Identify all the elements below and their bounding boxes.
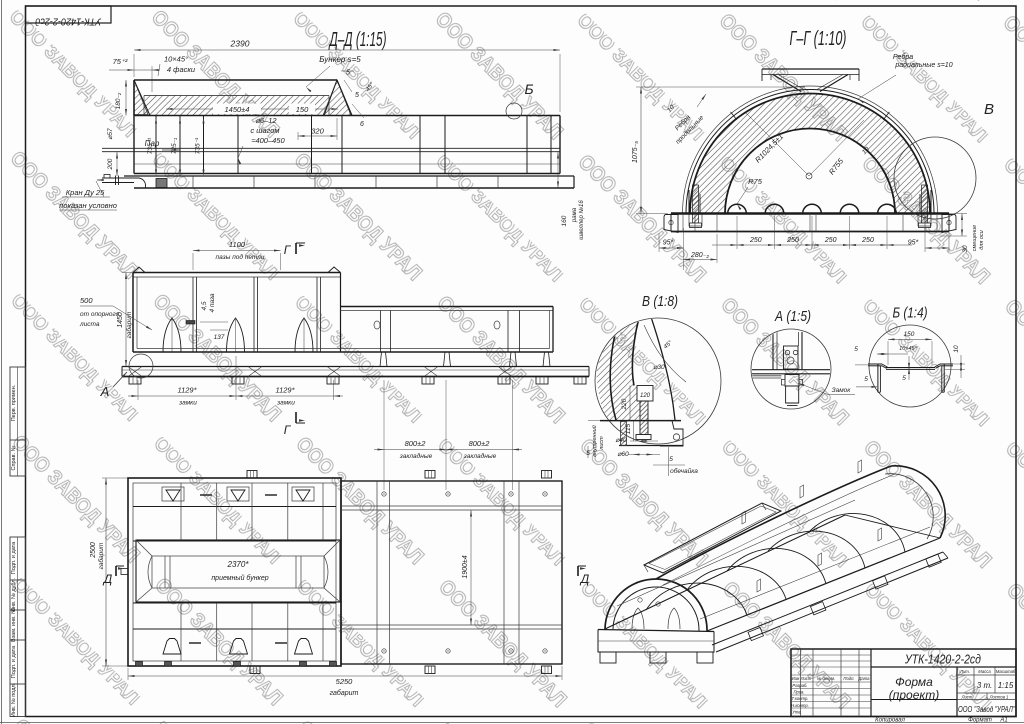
svg-text:R75: R75 (748, 177, 763, 186)
svg-text:приемный бункер: приемный бункер (211, 574, 268, 582)
svg-text:Лист: Лист (961, 695, 973, 700)
svg-text:1075₋₅: 1075₋₅ (632, 141, 639, 163)
svg-text:⌀40: ⌀40 (615, 437, 627, 444)
svg-text:Разраб.: Разраб. (792, 683, 807, 688)
svg-text:Замок: Замок (832, 387, 852, 394)
svg-text:5: 5 (854, 346, 858, 353)
svg-text:Пров.: Пров. (793, 690, 804, 695)
svg-text:200: 200 (107, 158, 114, 170)
svg-text:Подп. и дата: Подп. и дата (11, 645, 17, 678)
svg-text:швеллер №16: швеллер №16 (578, 200, 585, 240)
svg-text:10×45°: 10×45° (899, 346, 917, 352)
svg-text:95*: 95* (908, 240, 919, 247)
svg-text:150: 150 (296, 105, 309, 114)
svg-text:Копировал: Копировал (875, 718, 905, 724)
svg-text:лист: лист (599, 436, 605, 451)
svg-text:4 паза: 4 паза (209, 293, 216, 312)
svg-text:Формат: Формат (968, 718, 992, 724)
svg-text:280₋₂: 280₋₂ (690, 252, 709, 259)
svg-text:Б: Б (524, 81, 533, 97)
svg-text:220: 220 (621, 398, 628, 410)
svg-text:Д–Д (1:15): Д–Д (1:15) (328, 29, 386, 51)
svg-text:5: 5 (346, 70, 350, 77)
svg-text:А: А (100, 384, 110, 399)
svg-text:250: 250 (786, 237, 799, 244)
svg-text:⌀60: ⌀60 (617, 451, 629, 458)
svg-text:800±2: 800±2 (405, 439, 427, 448)
svg-text:от опорного: от опорного (80, 311, 120, 318)
svg-text:Д: Д (579, 572, 590, 586)
svg-text:250: 250 (749, 237, 762, 244)
svg-text:Г–Г (1:10): Г–Г (1:10) (790, 28, 847, 50)
svg-text:Д: Д (102, 572, 113, 586)
svg-text:Лист: Лист (800, 676, 812, 681)
svg-text:1100: 1100 (229, 240, 246, 249)
svg-text:5: 5 (355, 92, 359, 99)
svg-text:Ребра: Ребра (893, 53, 913, 61)
svg-text:180₋₂: 180₋₂ (115, 92, 122, 109)
svg-text:1129*: 1129* (177, 386, 197, 395)
svg-text:6: 6 (360, 121, 364, 128)
svg-text:3 т.: 3 т. (977, 681, 992, 690)
svg-text:1129*: 1129* (275, 386, 295, 395)
svg-text:рама: рама (572, 207, 578, 223)
svg-text:А (1:5): А (1:5) (774, 308, 811, 325)
svg-text:Инв. № подл.: Инв. № подл. (11, 682, 17, 717)
svg-text:4,5: 4,5 (201, 301, 208, 310)
svg-text:725₋₁: 725₋₁ (171, 138, 178, 154)
svg-text:габарит: габарит (97, 542, 105, 569)
svg-text:500: 500 (80, 296, 93, 305)
svg-text:А1: А1 (999, 718, 1007, 724)
svg-text:габарит: габарит (330, 689, 359, 697)
svg-text:Справ. №: Справ. № (11, 445, 17, 470)
svg-text:с шагом: с шагом (250, 126, 279, 135)
svg-text:Кран Ду 25: Кран Ду 25 (66, 188, 105, 197)
svg-text:внутренний: внутренний (591, 425, 598, 456)
svg-text:5250: 5250 (336, 677, 354, 686)
svg-text:250: 250 (861, 237, 874, 244)
svg-text:2370*: 2370* (227, 560, 250, 569)
svg-text:смещение: смещение (972, 225, 978, 251)
svg-text:замки: замки (178, 400, 197, 407)
svg-text:800±2: 800±2 (469, 439, 491, 448)
svg-text:(проект): (проект) (889, 688, 939, 702)
svg-text:обечайка: обечайка (670, 467, 698, 475)
svg-text:УТК-1420-2-2сд: УТК-1420-2-2сд (35, 16, 102, 28)
svg-text:Инв. № дубл.: Инв. № дубл. (11, 578, 17, 613)
svg-text:Листов 1: Листов 1 (989, 695, 1009, 700)
svg-text:Масса: Масса (978, 669, 991, 674)
svg-text:Масштаб: Масштаб (996, 669, 1016, 674)
svg-text:⌀57: ⌀57 (107, 128, 114, 140)
svg-text:закладные: закладные (399, 452, 433, 460)
svg-text:137: 137 (214, 334, 225, 341)
svg-text:115: 115 (625, 423, 632, 434)
svg-text:4 фаски: 4 фаски (167, 65, 196, 74)
svg-text:95*: 95* (663, 240, 674, 247)
svg-text:2500: 2500 (90, 542, 97, 559)
svg-text:Подп.: Подп. (843, 676, 854, 681)
svg-text:Изм: Изм (792, 676, 800, 681)
svg-text:2390: 2390 (230, 39, 250, 49)
svg-text:В (1:8): В (1:8) (642, 293, 678, 310)
svg-text:листа: листа (79, 321, 100, 328)
svg-text:УТК-1420-2-2сд: УТК-1420-2-2сд (904, 652, 981, 667)
svg-text:№ докум.: № докум. (817, 676, 835, 681)
svg-text:1450±4: 1450±4 (225, 105, 250, 114)
svg-text:320: 320 (311, 127, 324, 136)
svg-text:75⁺²: 75⁺² (113, 57, 128, 66)
svg-text:30: 30 (962, 245, 969, 253)
svg-text:Перв. примен.: Перв. примен. (11, 384, 17, 421)
svg-text:Утв.: Утв. (792, 710, 802, 715)
svg-text:показан условно: показан условно (59, 201, 117, 210)
svg-text:120: 120 (640, 393, 651, 399)
svg-text:735⁻¹: 735⁻¹ (147, 137, 154, 154)
svg-text:В: В (984, 101, 994, 118)
svg-text:Лит.: Лит. (959, 669, 970, 674)
svg-text:закладные: закладные (463, 452, 497, 460)
svg-text:5: 5 (669, 456, 673, 463)
svg-text:пазы под петли: пазы под петли (216, 253, 265, 261)
svg-text:Т.контр.: Т.контр. (792, 696, 809, 701)
svg-text:для оси: для оси (979, 230, 985, 249)
svg-text:Бункер s=5: Бункер s=5 (319, 55, 361, 64)
svg-text:10: 10 (953, 345, 960, 353)
svg-text:1900±4: 1900±4 (462, 555, 469, 578)
svg-text:Форма: Форма (895, 675, 933, 689)
svg-text:≈400–450: ≈400–450 (251, 136, 285, 145)
svg-text:Н.контр.: Н.контр. (791, 703, 809, 708)
svg-text:Б (1:4): Б (1:4) (893, 305, 928, 322)
svg-text:⌀6–12: ⌀6–12 (255, 116, 277, 125)
svg-text:735⁻¹: 735⁻¹ (195, 137, 202, 154)
svg-text:Подп. и дата: Подп. и дата (11, 541, 17, 574)
svg-text:Дата: Дата (857, 676, 870, 681)
svg-text:160: 160 (561, 215, 568, 226)
svg-text:Взам. инв. №: Взам. инв. № (11, 608, 17, 642)
svg-text:5: 5 (864, 376, 868, 383)
svg-text:10×45°: 10×45° (164, 55, 188, 64)
svg-text:150: 150 (904, 331, 915, 338)
svg-text:1450: 1450 (117, 312, 124, 328)
svg-text:радиальные s=10: радиальные s=10 (894, 61, 952, 69)
svg-text:250: 250 (824, 237, 837, 244)
svg-text:5: 5 (902, 375, 906, 382)
svg-text:1:15: 1:15 (998, 681, 1014, 690)
svg-text:габарит: габарит (125, 311, 133, 338)
svg-text:замки: замки (276, 400, 295, 407)
svg-text:ООО "Завод "УРАЛ": ООО "Завод "УРАЛ" (958, 705, 1016, 714)
svg-text:⌀30: ⌀30 (653, 364, 665, 371)
